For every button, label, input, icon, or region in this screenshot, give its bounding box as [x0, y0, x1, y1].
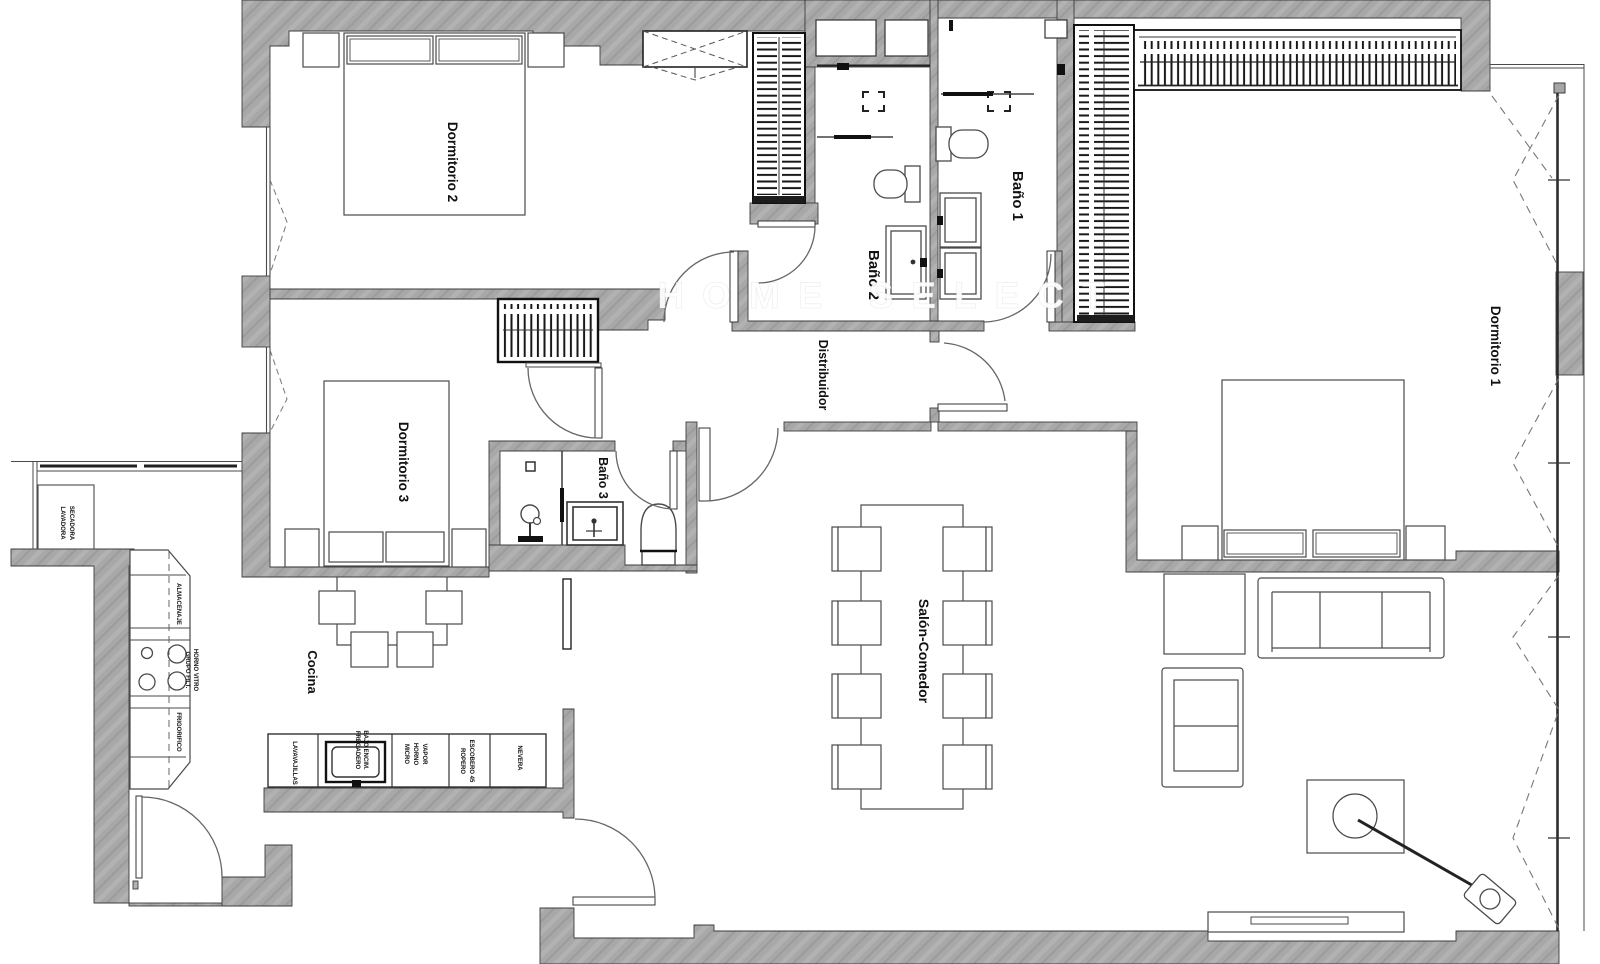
svg-text:Dormitorio 3: Dormitorio 3	[396, 422, 411, 503]
svg-text:ROPERO: ROPERO	[459, 748, 465, 774]
svg-text:Salón-Comedor: Salón-Comedor	[916, 599, 932, 704]
svg-text:LAVADORA: LAVADORA	[59, 506, 65, 540]
svg-text:GRUPO FILT.: GRUPO FILT.	[184, 652, 190, 689]
svg-text:HORNO VITRO: HORNO VITRO	[192, 649, 198, 692]
svg-text:MICRO: MICRO	[403, 744, 409, 764]
svg-text:Distribuidor: Distribuidor	[816, 340, 830, 411]
svg-text:Cocina: Cocina	[305, 650, 320, 694]
svg-text:LAVAVAJILLAS: LAVAVAJILLAS	[291, 741, 297, 785]
svg-text:HOME SELECT: HOME SELECT	[657, 275, 1122, 316]
svg-text:HORNO: HORNO	[412, 743, 418, 766]
svg-text:FREGADERO: FREGADERO	[354, 731, 360, 770]
svg-text:ALMACENAJE: ALMACENAJE	[175, 583, 181, 625]
svg-text:Dormitorio 2: Dormitorio 2	[445, 122, 460, 202]
svg-text:Baño 3: Baño 3	[596, 457, 610, 499]
svg-text:ESCOBERO 45: ESCOBERO 45	[468, 740, 474, 783]
svg-text:NEVERA: NEVERA	[516, 745, 522, 771]
svg-text:FRIGORIFICO: FRIGORIFICO	[175, 712, 181, 752]
svg-text:Dormitorio 1: Dormitorio 1	[1488, 306, 1503, 387]
svg-text:VAPOR: VAPOR	[421, 744, 427, 766]
svg-text:Baño 1: Baño 1	[1009, 171, 1026, 221]
svg-text:BAJO ENCIM.: BAJO ENCIM.	[362, 730, 368, 770]
svg-text:SECADORA: SECADORA	[68, 506, 74, 541]
